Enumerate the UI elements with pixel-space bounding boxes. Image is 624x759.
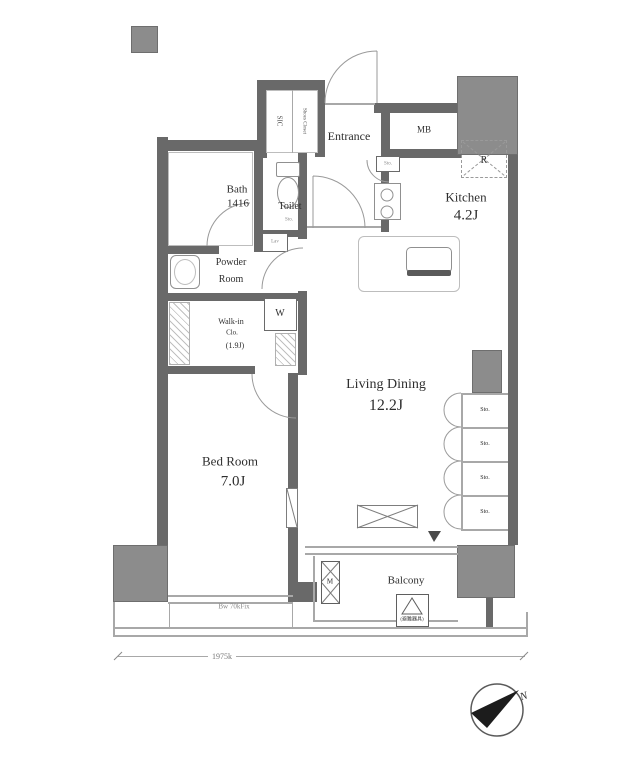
railing-left-end xyxy=(113,602,115,636)
dimension-label: 1975k xyxy=(208,653,236,661)
compass-circle xyxy=(471,684,523,736)
compass xyxy=(471,684,523,736)
pillar-bottom-left xyxy=(113,545,168,602)
storage-label-1: Sto. xyxy=(480,441,490,447)
balcony-left-edge xyxy=(313,556,315,622)
bath-size: 1416 xyxy=(227,199,249,210)
wall-bath-powder xyxy=(157,246,219,254)
railing-right-end xyxy=(526,612,528,636)
evacuation-hatch-label: (避難器具) xyxy=(400,618,423,623)
living-window-line1 xyxy=(305,546,458,548)
pipe-space-block xyxy=(472,350,502,393)
walkin-hanger-left xyxy=(169,302,190,365)
wall-bedroom-right-lower xyxy=(288,527,298,584)
shoes-closet-right-label: Shoes Closet xyxy=(302,108,307,134)
storage-label-0: Sto. xyxy=(480,407,490,413)
bedroom-ledge-right xyxy=(292,602,293,628)
kitchen-name: Kitchen xyxy=(445,191,486,204)
window-note: Bw 70kFix xyxy=(218,604,249,611)
meter-label: M xyxy=(326,579,334,586)
kitchen-size: 4.2J xyxy=(454,209,479,224)
shoes-closet-left-label: SIC xyxy=(276,116,283,127)
compass-north-label: N xyxy=(519,691,529,704)
dimension-line xyxy=(118,656,525,657)
wall-shoes-closet-top xyxy=(257,80,322,90)
entrance-door-arc xyxy=(325,51,377,103)
toilet-note: Sto. xyxy=(285,218,293,223)
storage-divider-3 xyxy=(461,495,508,497)
pillar-top-left xyxy=(131,26,158,53)
living-name: Living Dining xyxy=(346,378,426,392)
fridge-label: R xyxy=(481,156,488,166)
storage-divider-2 xyxy=(461,461,508,463)
living-bench xyxy=(357,505,418,528)
balcony-bottom-edge xyxy=(313,620,458,622)
entrance-label: Entrance xyxy=(328,130,371,142)
shoes-closet-divider xyxy=(292,90,293,153)
storage-door-arc-1 xyxy=(444,427,461,461)
compass-needle xyxy=(471,690,519,728)
hall-step-line xyxy=(307,226,381,228)
storage-divider-1 xyxy=(461,427,508,429)
wall-bedroom-right-upper xyxy=(288,373,298,489)
hall-living-door-arc xyxy=(313,176,365,228)
living-size: 12.2J xyxy=(369,398,403,414)
bedroom-size: 7.0J xyxy=(221,475,246,490)
walkin-line1: Walk-in xyxy=(218,318,244,326)
railing-line2 xyxy=(113,635,528,637)
bedroom-sliding-door xyxy=(286,488,298,528)
wall-right-outer xyxy=(508,155,518,545)
bath-name: Bath xyxy=(227,185,248,196)
railing-line1 xyxy=(113,627,528,629)
lav-label: Lav xyxy=(271,240,279,245)
toilet-name: Toilet xyxy=(278,202,301,212)
wall-walkin-bedroom xyxy=(157,366,255,374)
entrance-threshold-line xyxy=(325,103,375,105)
stove xyxy=(374,183,401,220)
powder-line2: Room xyxy=(219,275,243,285)
powder-door-arc xyxy=(262,248,303,289)
balcony-label: Balcony xyxy=(388,576,425,587)
storage-label-3: Sto. xyxy=(480,509,490,515)
storage-door-arc-0 xyxy=(444,393,461,427)
storage-label-2: Sto. xyxy=(480,475,490,481)
storage-divider-0 xyxy=(461,393,508,395)
wall-balcony-stub xyxy=(486,596,493,628)
pillar-bottom-right xyxy=(457,545,515,598)
walkin-hanger-right xyxy=(275,333,296,366)
storage-divider-4 xyxy=(461,529,508,531)
toilet-tank xyxy=(276,162,300,177)
wall-walkin-right xyxy=(298,291,307,375)
walkin-line2: Clo. xyxy=(226,330,238,337)
storage-door-arc-3 xyxy=(444,495,461,529)
floor-plan: Entrance MB R Kitchen 4.2J Bath 1416 Toi… xyxy=(0,0,624,759)
wall-bath-top xyxy=(157,140,264,151)
mb-label: MB xyxy=(417,126,431,135)
wall-left-outer xyxy=(157,137,168,547)
walkin-size: (1.9J) xyxy=(226,342,244,350)
living-window-line2 xyxy=(305,553,458,555)
washer-label: W xyxy=(275,309,284,319)
bedroom-window-line1 xyxy=(168,595,293,597)
hall-shelf-label: Sto. xyxy=(384,162,392,167)
bedroom-ledge-left xyxy=(169,602,170,628)
powder-sink-basin xyxy=(174,259,196,285)
bedroom-name: Bed Room xyxy=(202,455,258,468)
kitchen-sink-edge xyxy=(407,270,451,276)
powder-line1: Powder xyxy=(216,258,247,268)
storage-door-arc-2 xyxy=(444,461,461,495)
balcony-marker-triangle xyxy=(428,531,441,542)
